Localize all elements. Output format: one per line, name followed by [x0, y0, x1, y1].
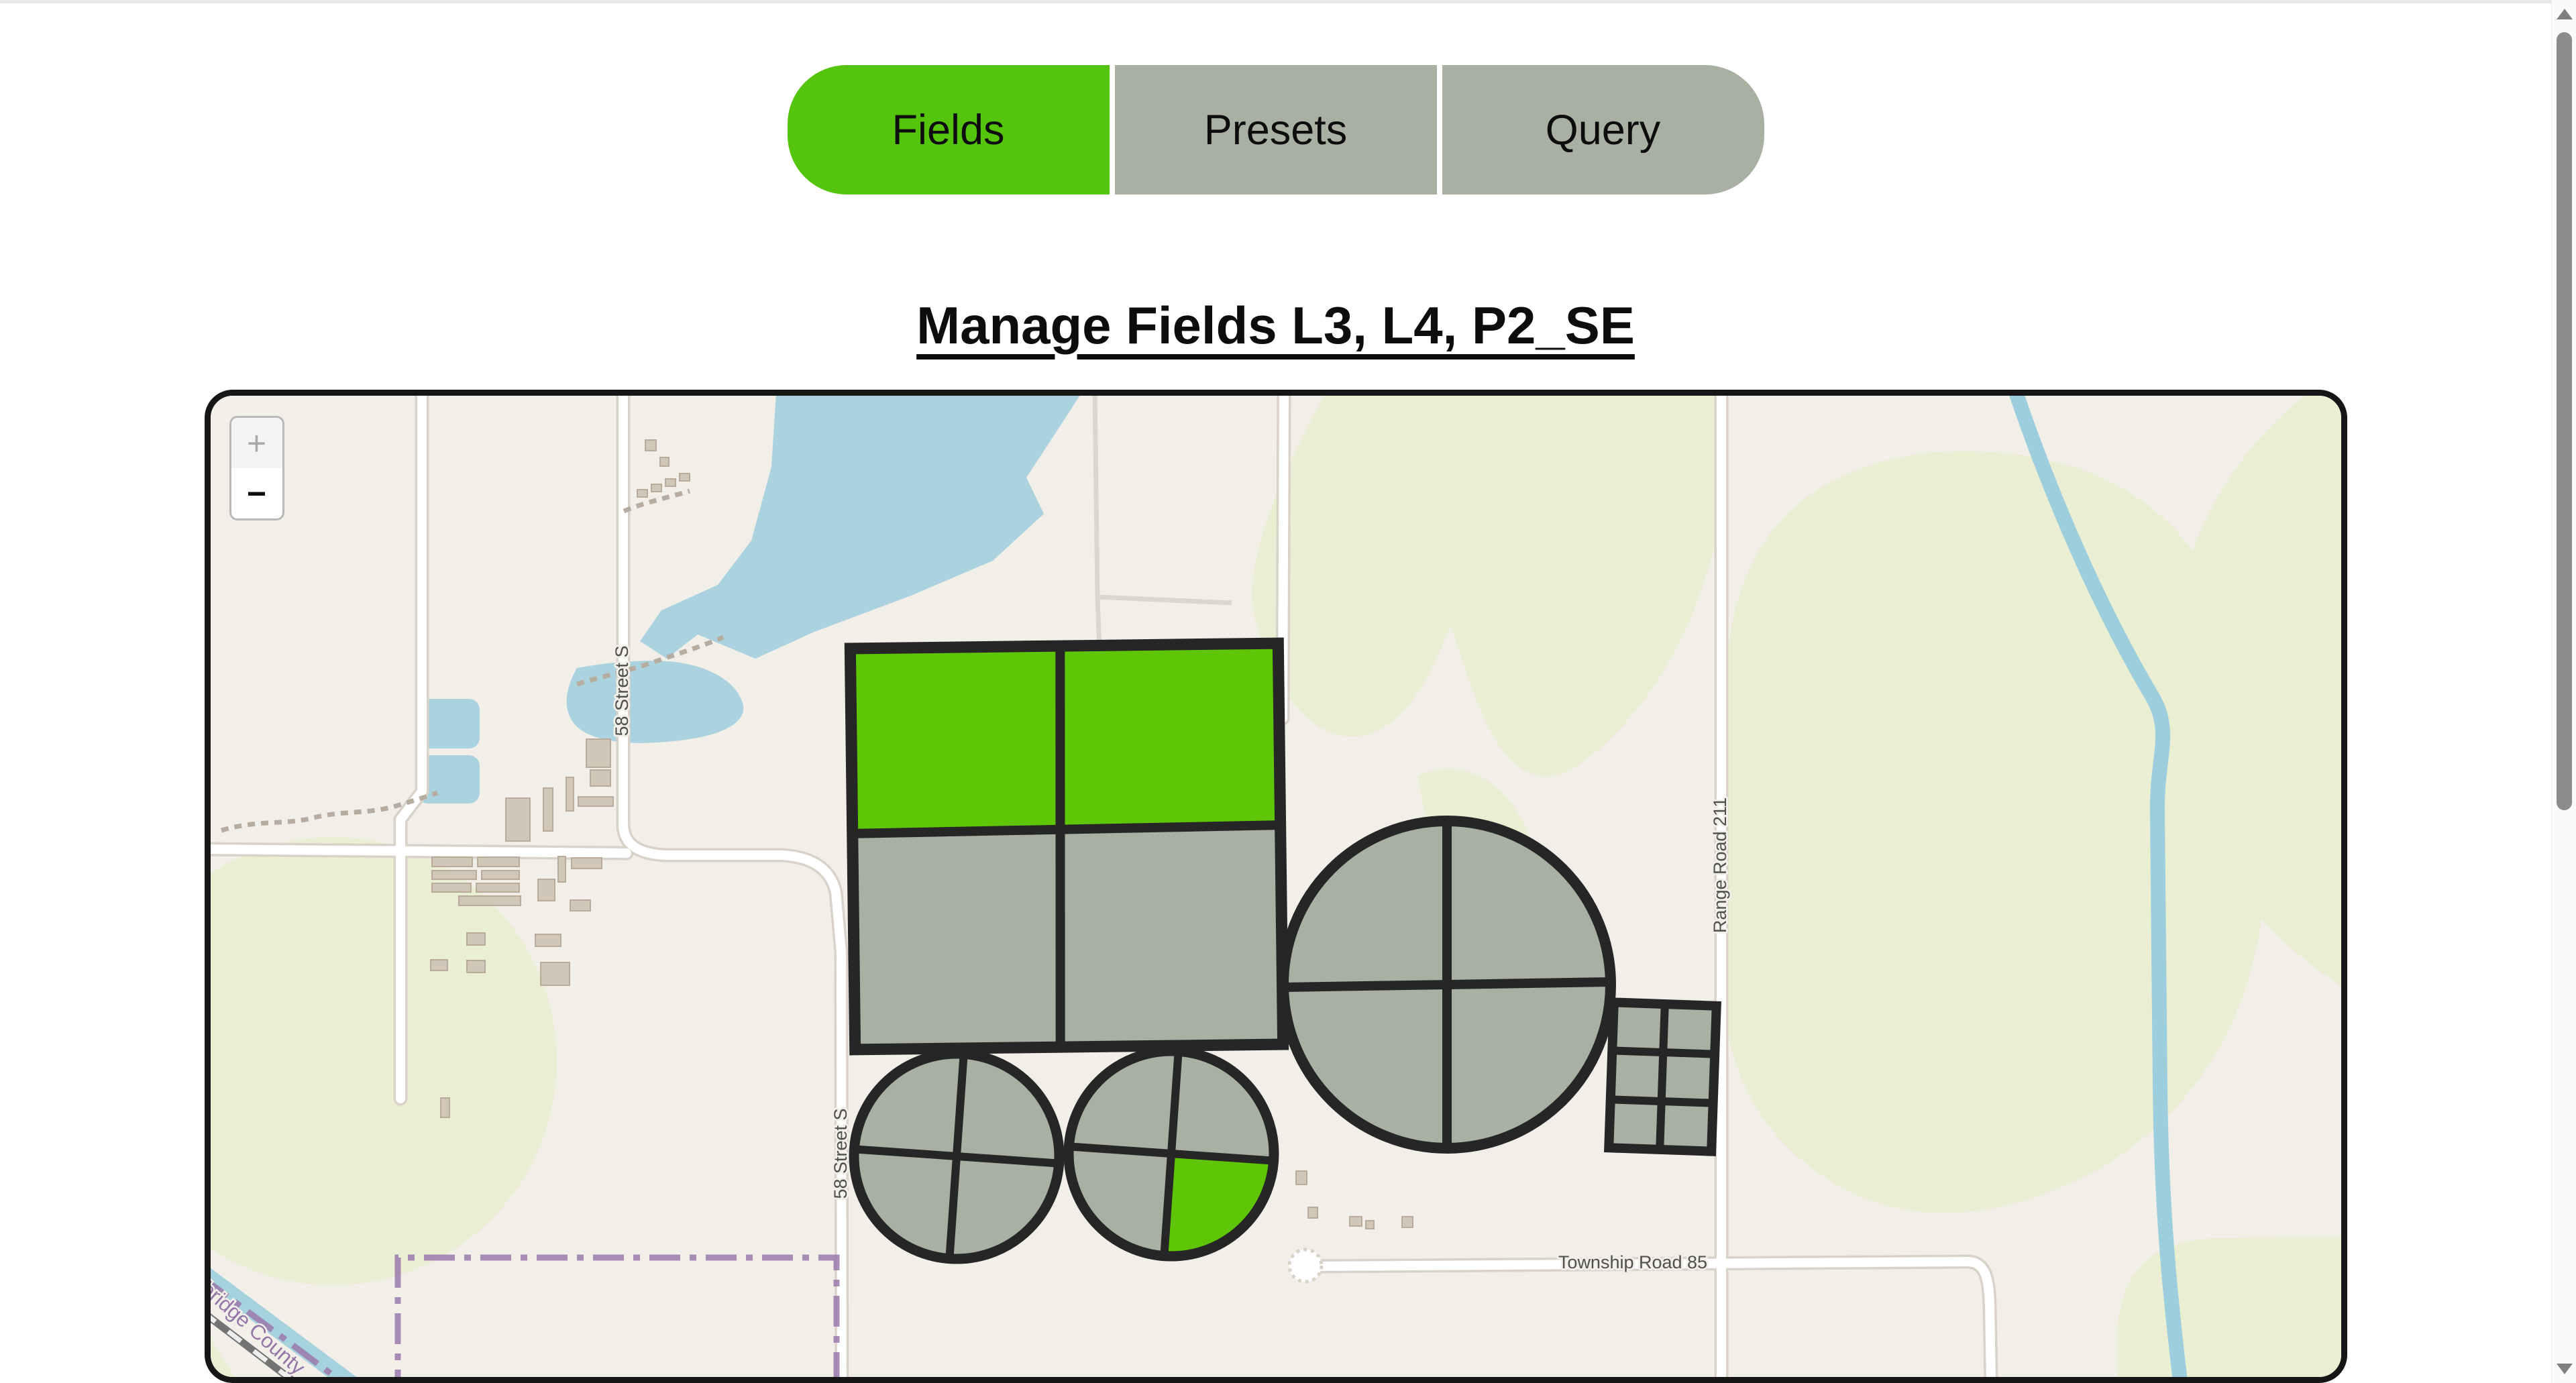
map-canvas: 58 Street S 58 Street S Range Road 211 T…	[211, 396, 2341, 1383]
cul-de-sac	[1289, 1250, 1322, 1282]
tab-presets[interactable]: Presets	[1115, 65, 1437, 195]
township-road-label: Township Road 85	[1558, 1252, 1707, 1272]
page-content: Fields Presets Query Manage Fields L3, L…	[0, 0, 2551, 1383]
field-large-circle[interactable]	[1283, 821, 1611, 1148]
zoom-out-button[interactable]: −	[231, 468, 282, 518]
scrollbar-up-arrow-icon[interactable]	[2557, 9, 2573, 19]
map[interactable]: 58 Street S 58 Street S Range Road 211 T…	[205, 390, 2347, 1383]
page-scrollbar[interactable]	[2551, 0, 2576, 1383]
range-road-label: Range Road 211	[1710, 797, 1730, 933]
app-viewport: Fields Presets Query Manage Fields L3, L…	[0, 0, 2576, 1383]
map-zoom-control: + −	[229, 416, 284, 520]
street-label-upper: 58 Street S	[612, 645, 632, 736]
scrollbar-thumb[interactable]	[2557, 32, 2572, 810]
zoom-in-button[interactable]: +	[231, 418, 282, 468]
field-square[interactable]	[850, 643, 1283, 1050]
top-edge-strip	[0, 0, 2576, 3]
scrollbar-down-arrow-icon[interactable]	[2557, 1364, 2573, 1374]
field-grid[interactable]	[1609, 1002, 1716, 1151]
street-label-lower: 58 Street S	[830, 1108, 851, 1199]
tab-query[interactable]: Query	[1442, 65, 1764, 195]
tab-bar: Fields Presets Query	[788, 65, 1764, 195]
tab-fields[interactable]: Fields	[788, 65, 1110, 195]
page-title: Manage Fields L3, L4, P2_SE	[916, 295, 1635, 356]
